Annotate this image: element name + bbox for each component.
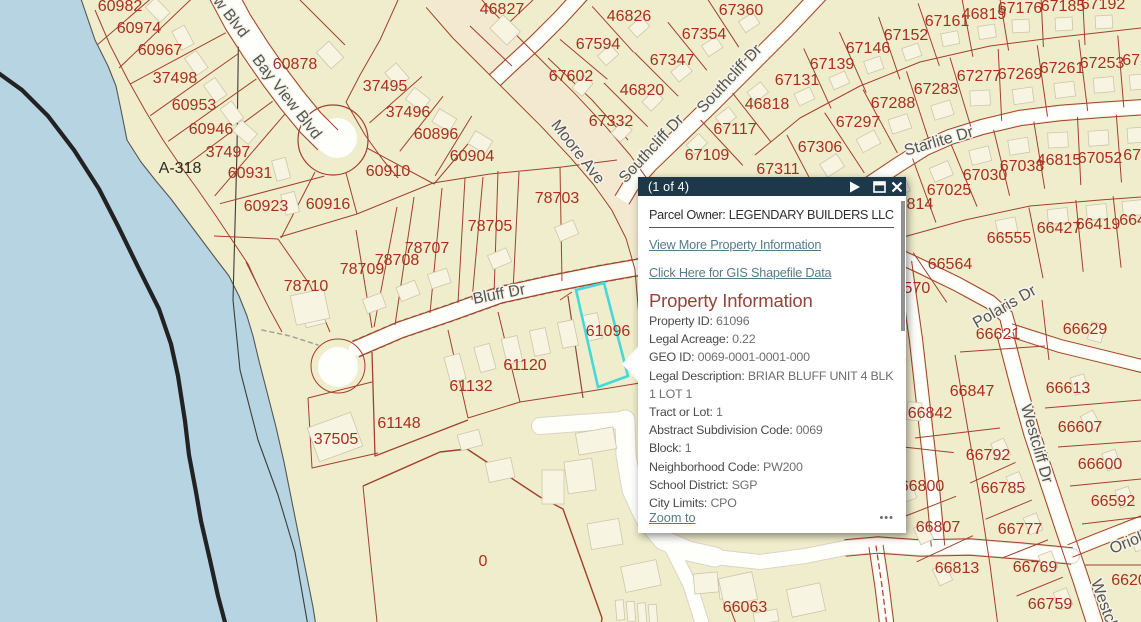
svg-text:67261: 67261 xyxy=(1040,60,1085,77)
svg-text:61120: 61120 xyxy=(503,357,546,374)
svg-text:66600: 66600 xyxy=(1078,456,1123,473)
svg-text:66813: 66813 xyxy=(935,560,980,577)
svg-text:67283: 67283 xyxy=(914,81,959,98)
svg-text:60967: 60967 xyxy=(138,42,183,59)
svg-text:66564: 66564 xyxy=(928,256,973,273)
svg-text:66769: 66769 xyxy=(1013,559,1058,576)
svg-text:60982: 60982 xyxy=(98,0,143,15)
svg-text:67311: 67311 xyxy=(756,161,799,178)
svg-text:67306: 67306 xyxy=(798,139,843,156)
svg-text:66629: 66629 xyxy=(1063,321,1108,338)
svg-text:37497: 37497 xyxy=(206,144,251,161)
svg-text:46820: 46820 xyxy=(620,82,665,99)
svg-text:67192: 67192 xyxy=(1081,0,1126,13)
svg-text:6724: 6724 xyxy=(1122,52,1141,69)
svg-text:67288: 67288 xyxy=(871,95,916,112)
svg-text:67360: 67360 xyxy=(719,2,764,19)
svg-text:66592: 66592 xyxy=(1091,493,1136,510)
svg-text:60931: 60931 xyxy=(228,165,273,182)
svg-text:A-318: A-318 xyxy=(159,160,202,177)
svg-text:66419: 66419 xyxy=(1076,216,1121,233)
svg-text:37495: 37495 xyxy=(363,78,408,95)
svg-text:67269: 67269 xyxy=(998,66,1043,83)
svg-text:6620: 6620 xyxy=(1111,572,1141,589)
svg-text:66800: 66800 xyxy=(900,478,945,495)
svg-text:67253: 67253 xyxy=(1080,55,1125,72)
svg-text:66785: 66785 xyxy=(981,480,1026,497)
svg-text:37505: 37505 xyxy=(314,431,359,448)
svg-text:67185: 67185 xyxy=(1041,0,1086,15)
svg-text:6641: 6641 xyxy=(1119,212,1141,229)
svg-text:67594: 67594 xyxy=(576,36,621,53)
svg-text:60910: 60910 xyxy=(366,163,411,180)
svg-text:67332: 67332 xyxy=(589,113,634,130)
svg-text:60923: 60923 xyxy=(244,198,289,215)
svg-text:60974: 60974 xyxy=(117,20,162,37)
svg-text:66759: 66759 xyxy=(1028,596,1073,613)
svg-text:46818: 46818 xyxy=(745,96,790,113)
svg-text:37496: 37496 xyxy=(386,104,431,121)
svg-text:61148: 61148 xyxy=(377,415,420,432)
svg-text:67117: 67117 xyxy=(713,121,756,138)
svg-text:66792: 66792 xyxy=(966,447,1011,464)
svg-text:60878: 60878 xyxy=(273,56,318,73)
svg-text:67347: 67347 xyxy=(650,52,695,69)
svg-text:6760: 6760 xyxy=(1123,147,1141,164)
svg-text:60946: 60946 xyxy=(189,121,234,138)
svg-text:0: 0 xyxy=(479,553,488,570)
svg-text:67152: 67152 xyxy=(884,27,929,44)
svg-text:66847: 66847 xyxy=(950,383,995,400)
svg-text:61096: 61096 xyxy=(586,323,631,340)
svg-text:46827: 46827 xyxy=(480,1,525,18)
svg-text:37498: 37498 xyxy=(153,70,198,87)
svg-text:66613: 66613 xyxy=(1046,380,1091,397)
svg-text:66777: 66777 xyxy=(998,521,1043,538)
svg-text:66607: 66607 xyxy=(1058,419,1103,436)
svg-text:60953: 60953 xyxy=(172,97,217,114)
svg-text:67052: 67052 xyxy=(1078,150,1123,167)
svg-text:46826: 46826 xyxy=(607,8,652,25)
svg-text:61132: 61132 xyxy=(449,378,492,395)
svg-text:46815: 46815 xyxy=(1037,152,1082,169)
svg-text:67277: 67277 xyxy=(957,68,1002,85)
svg-text:67297: 67297 xyxy=(836,114,881,131)
svg-text:78710: 78710 xyxy=(284,278,329,295)
svg-text:78703: 78703 xyxy=(535,190,580,207)
svg-text:67602: 67602 xyxy=(549,68,594,85)
svg-text:60896: 60896 xyxy=(414,126,459,143)
svg-text:67025: 67025 xyxy=(927,182,972,199)
svg-text:67109: 67109 xyxy=(685,147,730,164)
svg-text:66842: 66842 xyxy=(908,405,953,422)
svg-text:66427: 66427 xyxy=(1037,220,1082,237)
svg-text:67176: 67176 xyxy=(998,0,1043,17)
svg-text:78709: 78709 xyxy=(340,261,385,278)
svg-text:67139: 67139 xyxy=(810,56,855,73)
svg-text:66063: 66063 xyxy=(723,599,768,616)
svg-text:78705: 78705 xyxy=(468,218,513,235)
svg-text:66807: 66807 xyxy=(916,519,961,536)
svg-text:60916: 60916 xyxy=(306,196,351,213)
svg-text:67354: 67354 xyxy=(682,26,727,43)
svg-text:66555: 66555 xyxy=(987,230,1032,247)
svg-text:67131: 67131 xyxy=(775,72,820,89)
svg-text:60904: 60904 xyxy=(450,148,495,165)
